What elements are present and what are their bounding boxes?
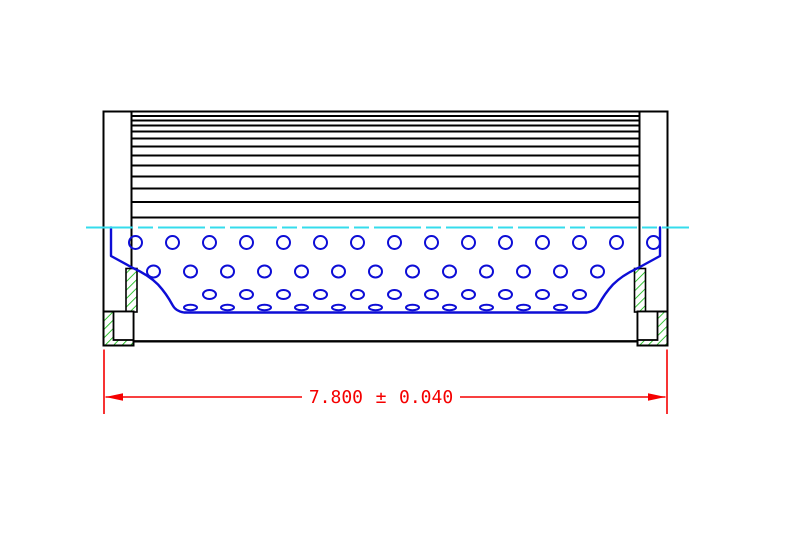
perforation-row-4	[184, 305, 567, 311]
perforation-hole	[295, 305, 308, 311]
perforation-hole	[240, 236, 253, 249]
perforation-hole	[295, 266, 308, 278]
perforation-hole	[499, 290, 512, 299]
perforation-hole	[517, 266, 530, 278]
perforation-hole	[443, 266, 456, 278]
perforation-hole	[462, 236, 475, 249]
perforation-hole	[480, 266, 493, 278]
perforation-hole	[166, 236, 179, 249]
perforation-hole	[351, 290, 364, 299]
technical-drawing: 7.800 ± 0.040	[0, 0, 789, 546]
perforation-hole	[536, 236, 549, 249]
arrowhead-left	[106, 393, 124, 401]
gasket-hatch-left-upper	[126, 269, 137, 313]
perforation-hole	[221, 266, 234, 278]
perforation-hole	[258, 305, 271, 311]
perforation-row-2	[147, 266, 604, 278]
dimension-tolerance: 0.040	[399, 387, 453, 408]
perforation-hole	[277, 290, 290, 299]
perforation-row-3	[203, 290, 586, 299]
perforation-hole	[332, 266, 345, 278]
perforation-hole	[517, 305, 530, 311]
perforation-hole	[610, 236, 623, 249]
end-cap-left-foot-bore	[114, 312, 134, 341]
perforation-row-1	[129, 236, 660, 249]
perforation-hole	[184, 266, 197, 278]
filter-media-block	[132, 112, 640, 218]
dimension: 7.800 ± 0.040	[104, 350, 667, 415]
perforation-hole	[406, 266, 419, 278]
perforation-hole	[369, 305, 382, 311]
perforation-hole	[406, 305, 419, 311]
perforation-hole	[314, 236, 327, 249]
arrowhead-right	[648, 393, 666, 401]
perforation-hole	[277, 236, 290, 249]
perforation-hole	[314, 290, 327, 299]
perforation-hole	[332, 305, 345, 311]
perforation-hole	[443, 305, 456, 311]
perforation-hole	[425, 290, 438, 299]
dimension-plus-minus: ±	[376, 387, 387, 408]
perforation-hole	[221, 305, 234, 311]
perforation-hole	[388, 290, 401, 299]
perforation-hole	[554, 305, 567, 311]
perforation-hole	[480, 305, 493, 311]
perforation-hole	[258, 266, 271, 278]
perforation-hole	[499, 236, 512, 249]
perforation-hole	[203, 290, 216, 299]
perforation-hole	[369, 266, 382, 278]
perforation-hole	[203, 236, 216, 249]
perforation-hole	[184, 305, 197, 311]
perforation-hole	[573, 236, 586, 249]
perforation-hole	[554, 266, 567, 278]
perforation-hole	[240, 290, 253, 299]
perforation-hole	[591, 266, 604, 278]
perforation-hole	[351, 236, 364, 249]
perforation-hole	[573, 290, 586, 299]
perforation-hole	[425, 236, 438, 249]
perforation-hole	[536, 290, 549, 299]
perforation-hole	[388, 236, 401, 249]
perforation-hole	[147, 266, 160, 278]
perforated-core	[111, 228, 660, 313]
core-perforation-holes	[129, 236, 660, 310]
end-cap-right-foot-bore	[638, 312, 658, 341]
drawing-canvas: 7.800 ± 0.040	[0, 0, 789, 546]
perforation-hole	[462, 290, 475, 299]
gasket-hatch-right-upper	[635, 269, 646, 313]
dimension-value: 7.800	[309, 387, 363, 408]
